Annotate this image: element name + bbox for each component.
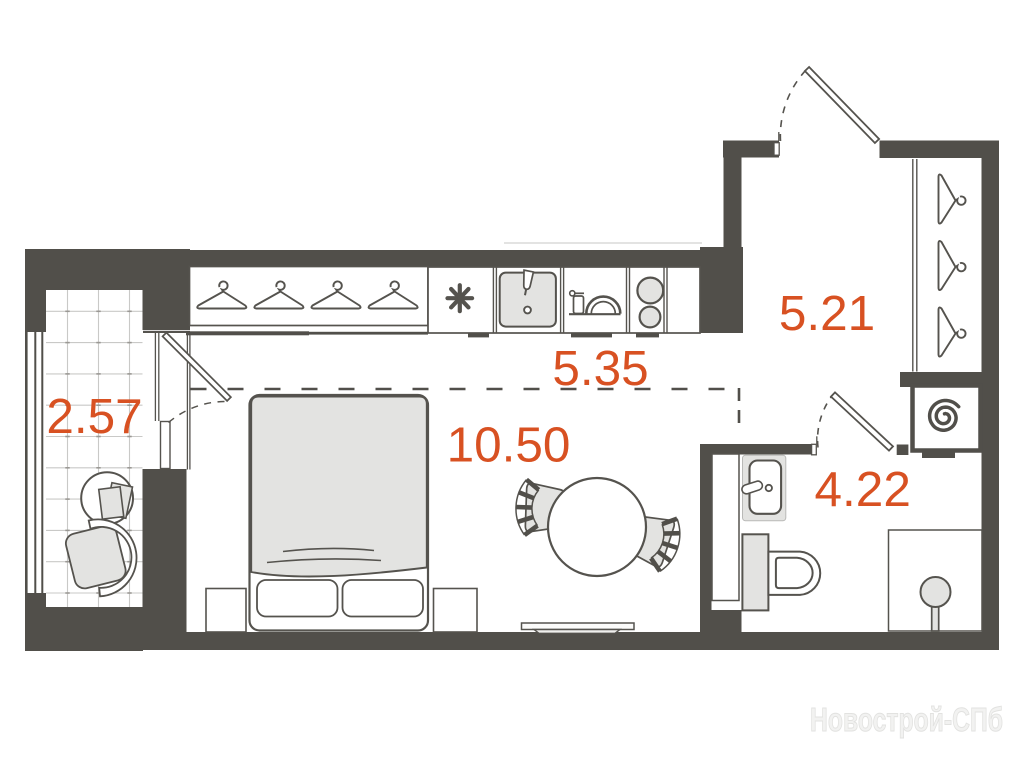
svg-text:2.57: 2.57 [46,389,142,444]
svg-text:Новострой-СПб: Новострой-СПб [810,701,1003,738]
svg-text:5.35: 5.35 [552,341,648,396]
svg-text:4.22: 4.22 [815,462,911,517]
svg-text:5.21: 5.21 [779,286,875,341]
svg-text:10.50: 10.50 [447,418,571,473]
